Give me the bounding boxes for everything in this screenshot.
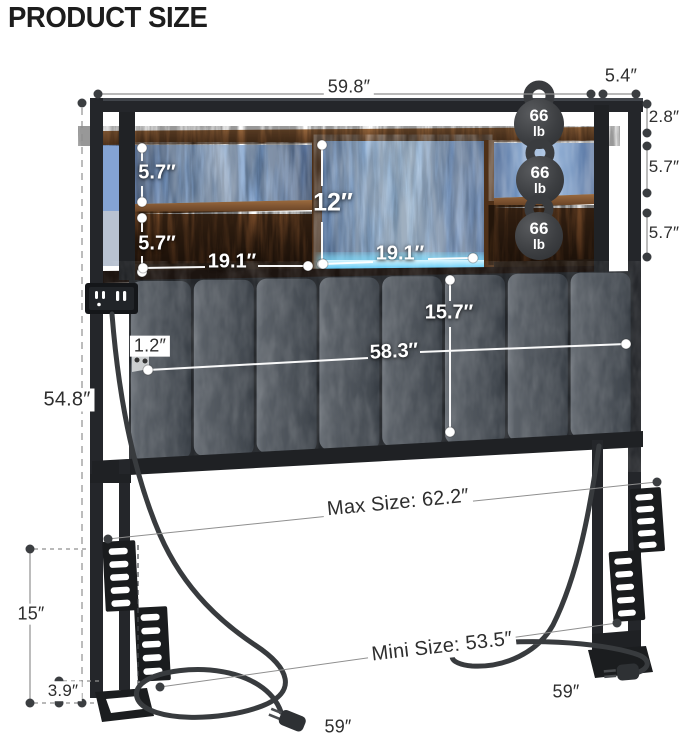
hutch-right-post [594, 105, 609, 280]
dim-top-width-label: 59.8″ [324, 77, 374, 98]
led-glow-left [103, 143, 120, 211]
product-size-diagram: PRODUCT SIZE 59.8″ 5.4″ 2.8″ 5.7″ 5.7″ 5… [0, 0, 679, 740]
mounting-bracket-left-upper [102, 540, 139, 612]
dim-right-shelf-lower-label: 5.7″ [649, 223, 679, 243]
hutch-left-post [119, 112, 135, 280]
dim-right-shelf-upper-label: 5.7″ [649, 157, 679, 177]
dim-left-cubby-width-label: 19.1″ [208, 251, 257, 274]
weight-capacity-badge: 66 lb [530, 107, 549, 139]
usb-icon [116, 291, 119, 301]
mounting-bracket-right-upper [630, 487, 665, 553]
mounting-bracket-right-lower [609, 550, 646, 622]
dim-panel-thickness-label: 1.2″ [130, 336, 170, 357]
diagram-canvas [0, 0, 679, 740]
weight-unit: lb [533, 125, 545, 139]
dim-right-top-offset-label: 2.8″ [649, 107, 679, 127]
power-strip [85, 283, 138, 314]
dim-left-shelf-lower-label: 5.7″ [138, 233, 175, 256]
dim-center-cubby-height-label: 12″ [313, 189, 353, 218]
dim-overall-height-label: 54.8″ [39, 389, 94, 412]
dim-headboard-panel-height-label: 15.7″ [425, 302, 474, 325]
weight-capacity-badge: 66 lb [530, 220, 549, 252]
dim-foot-height-label: 3.9″ [44, 681, 82, 701]
weight-capacity-badge: 66 lb [531, 164, 550, 196]
dim-left-cord-label: 59″ [325, 717, 352, 738]
divider-right [484, 140, 494, 271]
outlet-icon [95, 291, 98, 299]
weight-value: 66 [530, 107, 549, 125]
dim-leg-height-label: 15″ [14, 604, 49, 625]
dim-headboard-width-label: 58.3″ [369, 339, 419, 365]
plug-icon-left [267, 704, 307, 733]
dim-center-cubby-width-label: 19.1″ [376, 243, 425, 266]
page-title: PRODUCT SIZE [8, 2, 207, 35]
dim-right-cord-label: 59″ [553, 682, 580, 703]
dim-top-depth-label: 5.4″ [605, 66, 637, 87]
dim-left-shelf-upper-label: 5.7″ [138, 162, 175, 185]
